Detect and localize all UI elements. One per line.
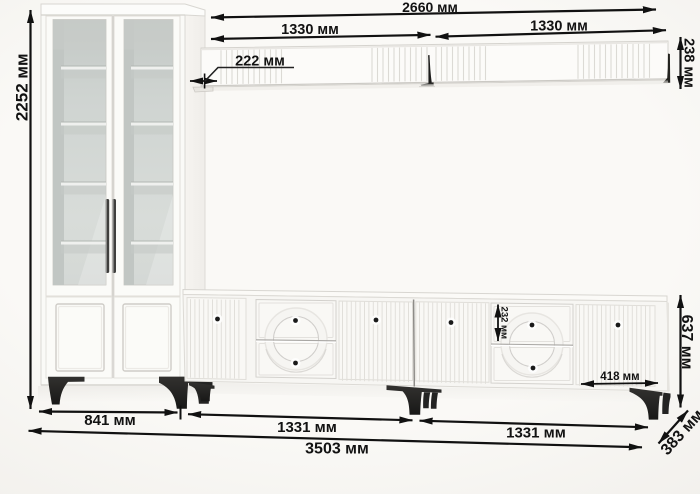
svg-text:1331 мм: 1331 мм [277,419,337,436]
svg-text:222 мм: 222 мм [235,53,285,69]
svg-text:2252 мм: 2252 мм [12,53,31,121]
svg-text:2660 мм: 2660 мм [402,0,458,15]
svg-text:238 мм: 238 мм [681,38,697,88]
svg-text:383 мм: 383 мм [658,407,700,459]
svg-text:1330 мм: 1330 мм [281,22,339,38]
svg-text:1331 мм: 1331 мм [506,425,566,442]
svg-text:841 мм: 841 мм [84,412,135,429]
svg-text:3503 мм: 3503 мм [305,441,369,458]
svg-text:232 мм: 232 мм [499,307,510,340]
svg-text:637 мм: 637 мм [678,315,695,370]
svg-text:1330 мм: 1330 мм [530,19,588,35]
svg-text:418 мм: 418 мм [600,371,639,383]
